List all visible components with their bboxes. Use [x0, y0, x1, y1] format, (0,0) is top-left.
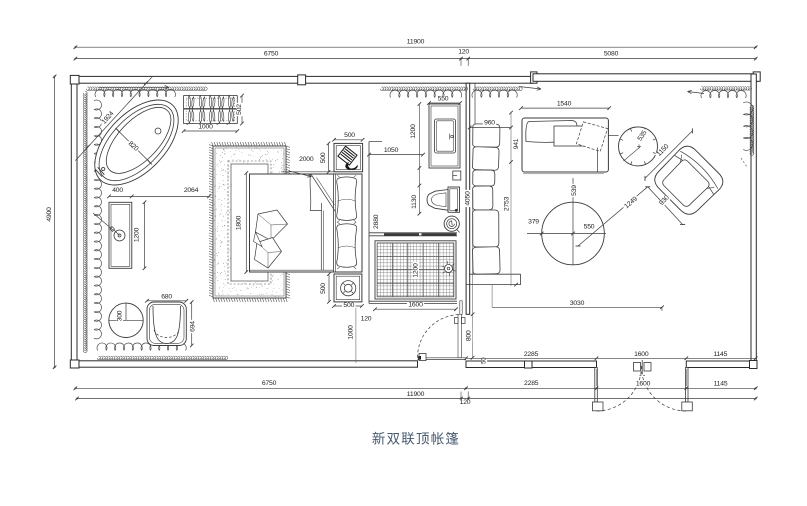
svg-text:1000: 1000	[347, 325, 354, 340]
svg-text:800: 800	[466, 330, 473, 341]
svg-text:120: 120	[361, 316, 372, 323]
svg-text:1600: 1600	[634, 351, 649, 358]
svg-text:300: 300	[116, 310, 123, 321]
svg-text:500: 500	[343, 302, 354, 309]
svg-text:379: 379	[528, 219, 539, 226]
svg-text:2753: 2753	[504, 196, 511, 211]
svg-text:50: 50	[482, 357, 488, 364]
svg-text:1600: 1600	[408, 302, 423, 309]
svg-text:1050: 1050	[384, 147, 399, 154]
svg-text:6750: 6750	[262, 380, 277, 387]
svg-text:2064: 2064	[184, 187, 199, 194]
svg-text:1800: 1800	[235, 215, 242, 230]
svg-text:1200: 1200	[134, 227, 141, 242]
svg-text:2000: 2000	[299, 156, 314, 163]
svg-text:1600: 1600	[636, 380, 651, 387]
svg-text:4900: 4900	[46, 207, 53, 222]
svg-text:941: 941	[513, 138, 520, 149]
svg-text:6750: 6750	[264, 51, 279, 58]
svg-text:539: 539	[571, 185, 578, 196]
svg-text:1200: 1200	[410, 124, 417, 139]
svg-text:1000: 1000	[198, 124, 213, 131]
svg-text:2285: 2285	[524, 380, 539, 387]
svg-text:500: 500	[344, 132, 355, 139]
svg-text:1145: 1145	[714, 380, 728, 387]
svg-text:新双联顶帐篷: 新双联顶帐篷	[372, 432, 460, 447]
svg-text:694: 694	[190, 321, 197, 332]
svg-text:11900: 11900	[407, 391, 425, 398]
svg-text:550: 550	[584, 223, 595, 230]
svg-text:120: 120	[458, 49, 469, 56]
svg-text:550: 550	[438, 96, 449, 103]
svg-text:3030: 3030	[570, 300, 585, 307]
svg-text:4050: 4050	[465, 191, 472, 206]
svg-text:11900: 11900	[407, 39, 425, 46]
svg-text:680: 680	[161, 293, 172, 300]
svg-text:1145: 1145	[713, 351, 727, 358]
svg-text:400: 400	[112, 187, 123, 194]
svg-text:500: 500	[320, 152, 327, 163]
svg-text:502: 502	[236, 104, 243, 115]
svg-text:5080: 5080	[604, 51, 619, 58]
svg-text:120: 120	[460, 399, 471, 406]
svg-text:1200: 1200	[412, 263, 419, 278]
svg-text:2285: 2285	[524, 351, 539, 358]
svg-text:960: 960	[484, 120, 495, 127]
svg-text:2880: 2880	[373, 214, 380, 229]
svg-text:1540: 1540	[557, 101, 572, 108]
svg-text:1130: 1130	[411, 195, 418, 209]
svg-text:500: 500	[320, 283, 327, 294]
